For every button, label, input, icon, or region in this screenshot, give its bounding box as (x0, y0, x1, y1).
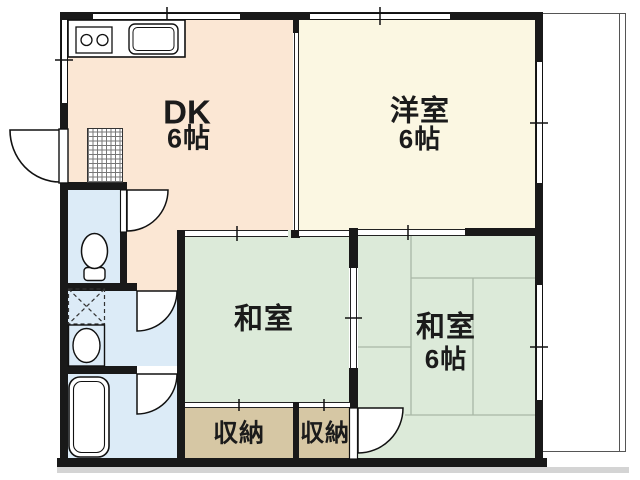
sliding-door-western-tatami-right (358, 229, 465, 236)
balcony-rail (619, 14, 620, 451)
wall-center-vertical (177, 230, 185, 467)
plan-shadow (57, 467, 629, 473)
sliding-door-western-tatami-center (299, 230, 349, 237)
wall-washroom-bathroom (68, 366, 137, 374)
label-western: 洋室 (390, 98, 450, 127)
window-tatami-right (536, 285, 543, 400)
room-bathroom (68, 374, 177, 458)
label-dk-size: 6帖 (167, 126, 211, 153)
wall-bottom (57, 458, 547, 467)
room-dk-corridor (120, 183, 177, 291)
wall-toilet-right (120, 190, 127, 283)
room-washroom (68, 291, 177, 366)
sliding-door-storage-right (299, 402, 350, 408)
window-kitchen-top (93, 13, 240, 20)
wall-tatami-divider-bottom (349, 368, 358, 408)
sliding-door-dk-tatami (185, 230, 288, 237)
label-tatami-center: 和室 (234, 306, 294, 335)
window-western-top (310, 13, 450, 20)
wall-toilet-washroom (68, 283, 137, 291)
window-kitchen-left (61, 20, 68, 103)
wall-genkan-bottom (60, 182, 127, 190)
label-western-size: 6帖 (399, 126, 441, 152)
label-tatami-right: 和室 (416, 314, 476, 343)
label-tatami-right-size: 6帖 (425, 346, 467, 372)
wall-tatami-divider-top (349, 228, 358, 268)
window-western-right (536, 62, 543, 183)
sliding-door-storage-left (185, 402, 293, 408)
genkan-tile (87, 128, 123, 183)
wall-dk-western-stub-top (293, 20, 299, 33)
label-storage-left: 収納 (213, 422, 265, 447)
room-toilet (68, 190, 120, 283)
wall-western-tatami-top (465, 228, 535, 236)
partition-dk-western (294, 33, 299, 230)
wall-storage-divider (293, 402, 299, 458)
label-storage-right: 収納 (300, 422, 350, 446)
sliding-door-tatami-tatami (350, 268, 357, 368)
floor-plan: DK 6帖 洋室 6帖 和室 和室 6帖 収納 収納 (0, 0, 640, 480)
